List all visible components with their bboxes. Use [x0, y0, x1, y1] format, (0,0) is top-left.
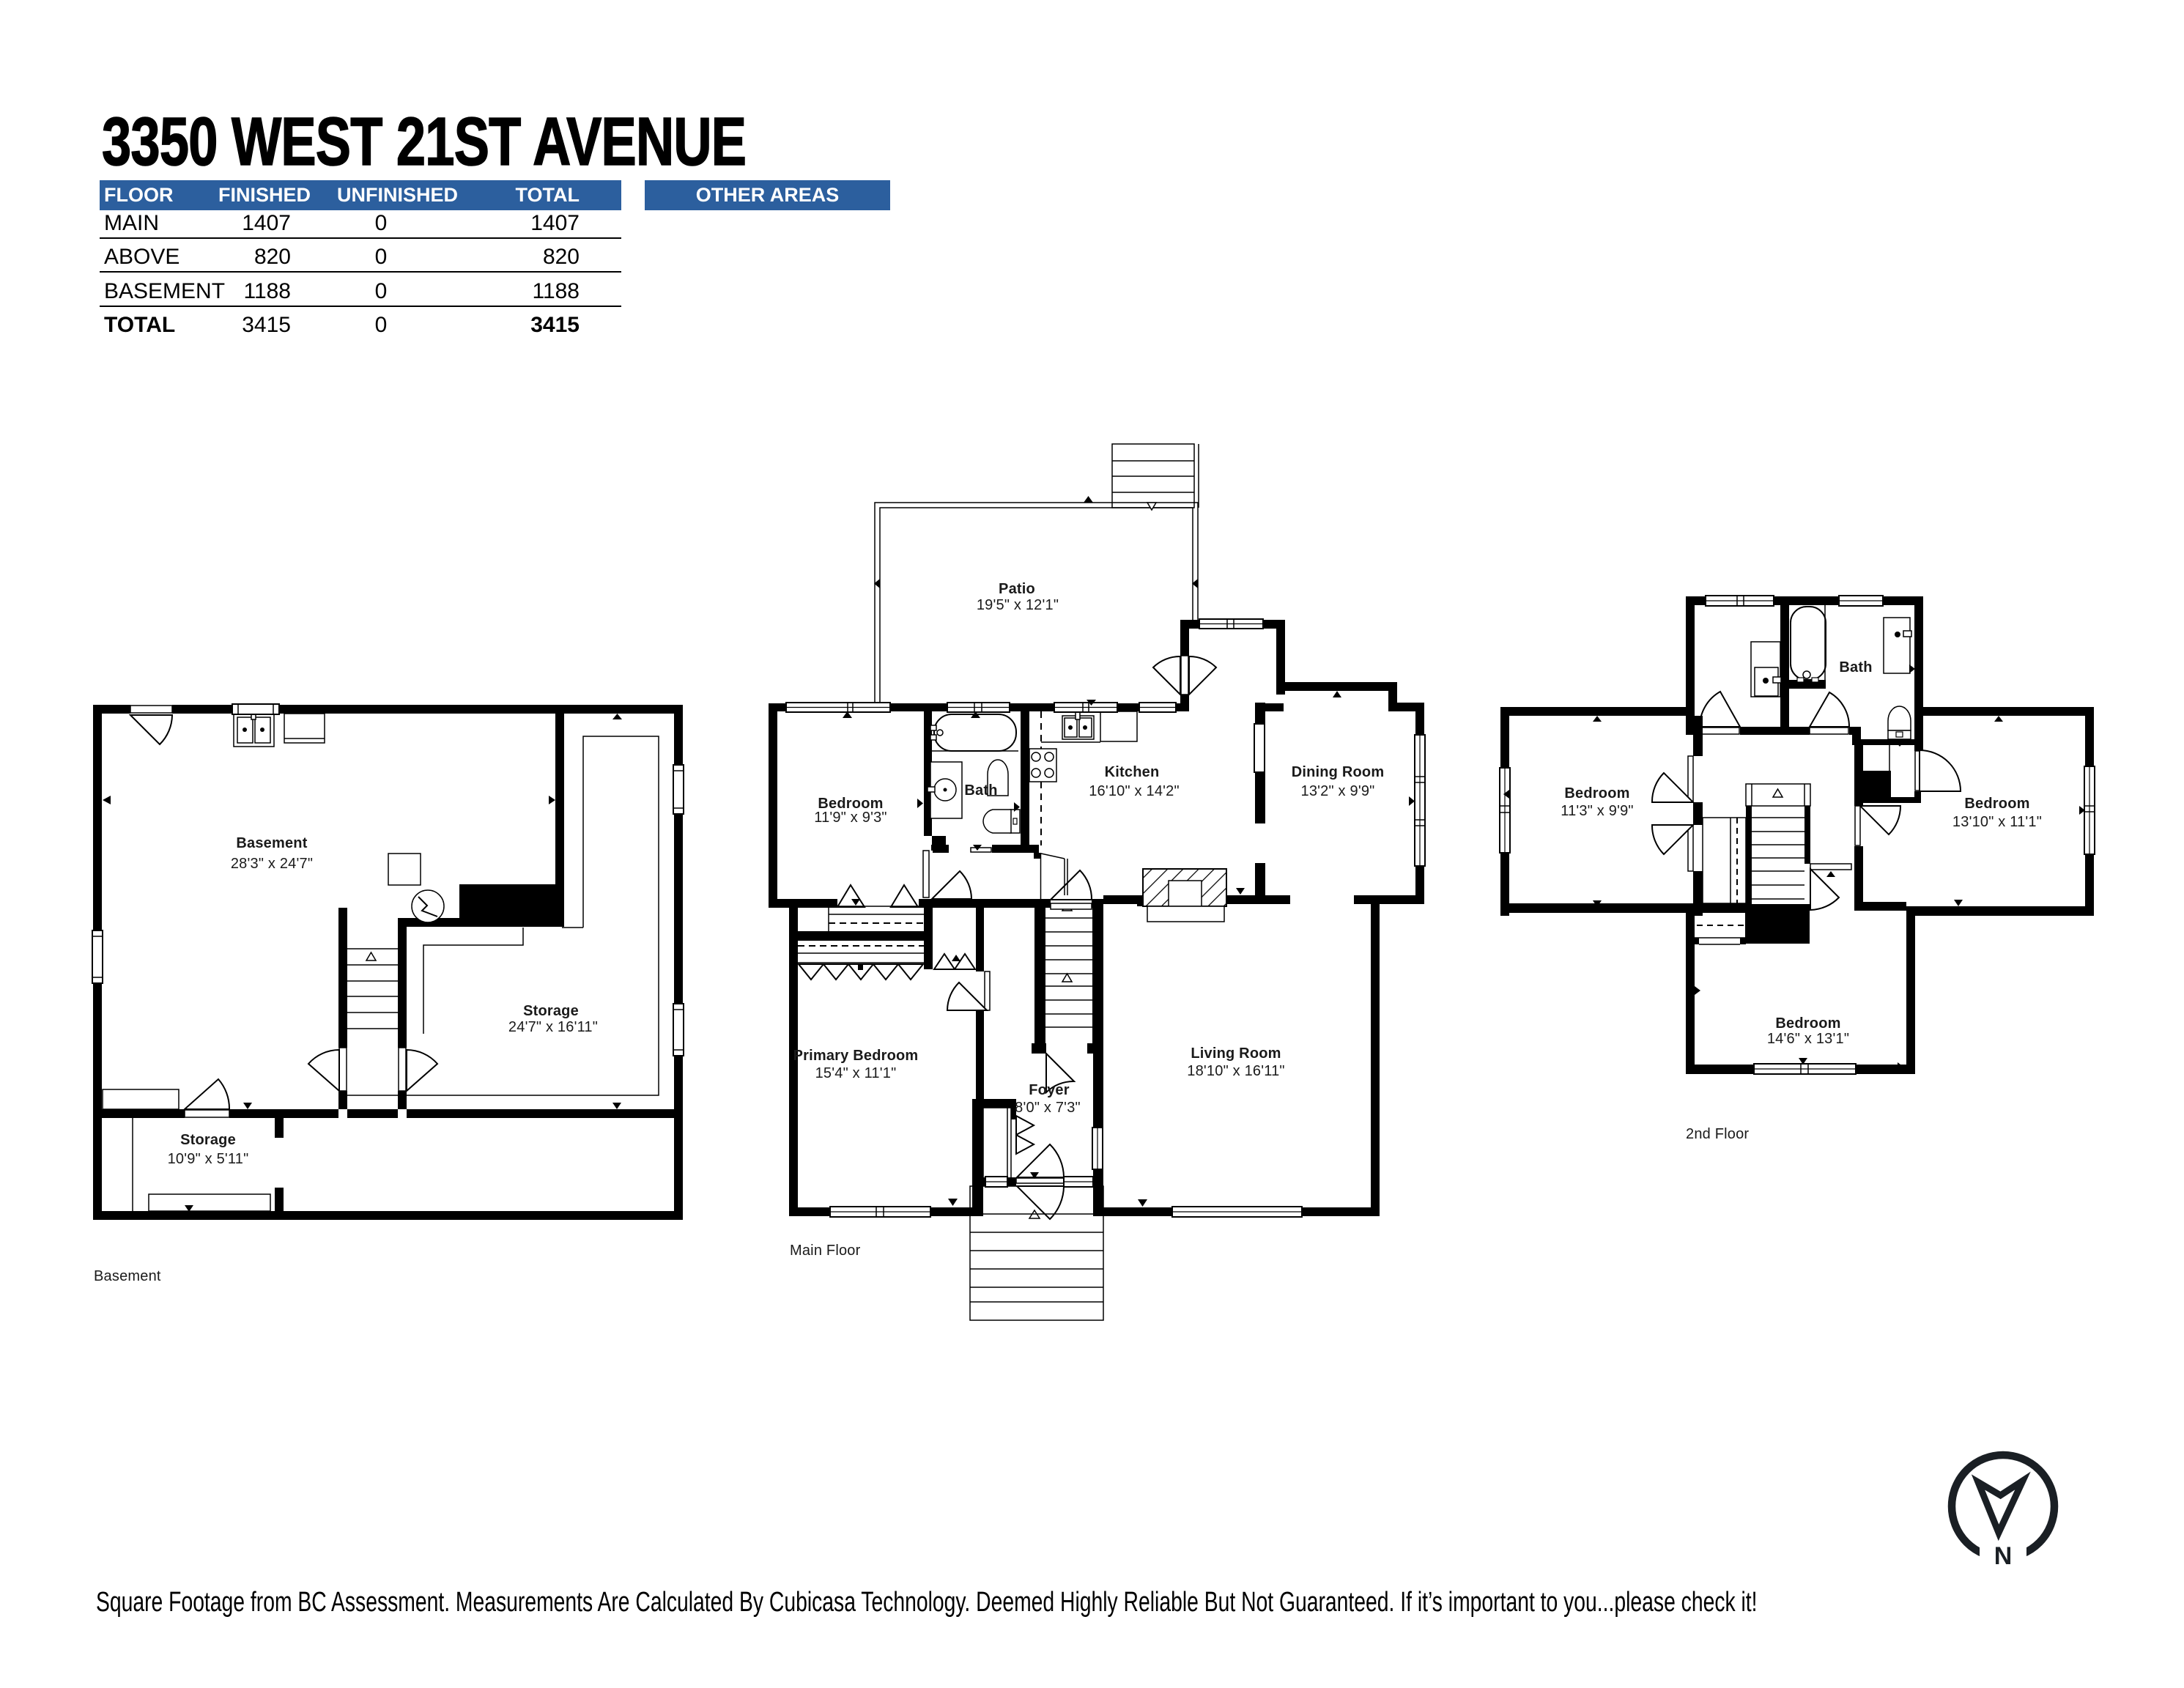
- svg-text:Bath: Bath: [964, 782, 997, 799]
- svg-text:Bath: Bath: [1839, 659, 1872, 675]
- svg-text:14'6" x 13'1": 14'6" x 13'1": [1767, 1031, 1849, 1047]
- svg-text:13'10" x 11'1": 13'10" x 11'1": [1952, 814, 2042, 830]
- svg-text:N: N: [1994, 1542, 2013, 1570]
- svg-text:Bedroom: Bedroom: [1564, 785, 1629, 802]
- svg-text:15'4" x 11'1": 15'4" x 11'1": [815, 1065, 897, 1081]
- svg-text:28'3" x 24'7": 28'3" x 24'7": [231, 856, 313, 872]
- svg-text:16'10" x 14'2": 16'10" x 14'2": [1089, 783, 1180, 799]
- svg-text:Bedroom: Bedroom: [1775, 1015, 1840, 1032]
- svg-text:Bedroom: Bedroom: [1964, 796, 2029, 812]
- svg-text:Kitchen: Kitchen: [1105, 764, 1160, 780]
- svg-text:Basement: Basement: [236, 835, 307, 851]
- svg-text:11'3" x 9'9": 11'3" x 9'9": [1561, 803, 1633, 819]
- svg-text:13'2" x 9'9": 13'2" x 9'9": [1301, 783, 1375, 799]
- svg-text:Main Floor: Main Floor: [790, 1243, 861, 1259]
- svg-text:11'9" x 9'3": 11'9" x 9'3": [814, 810, 886, 826]
- svg-text:Storage: Storage: [523, 1003, 579, 1019]
- svg-text:18'10" x 16'11": 18'10" x 16'11": [1187, 1063, 1284, 1079]
- svg-text:19'5" x 12'1": 19'5" x 12'1": [977, 597, 1059, 613]
- svg-text:2nd Floor: 2nd Floor: [1686, 1126, 1749, 1142]
- svg-text:Dining Room: Dining Room: [1292, 764, 1385, 780]
- svg-text:10'9" x 5'11": 10'9" x 5'11": [168, 1151, 249, 1167]
- svg-text:8'0" x 7'3": 8'0" x 7'3": [1015, 1100, 1081, 1116]
- svg-text:Primary Bedroom: Primary Bedroom: [793, 1048, 919, 1064]
- svg-text:Foyer: Foyer: [1029, 1082, 1069, 1098]
- svg-text:Basement: Basement: [94, 1268, 161, 1284]
- svg-text:Living Room: Living Room: [1191, 1045, 1281, 1062]
- svg-text:24'7" x 16'11": 24'7" x 16'11": [508, 1019, 598, 1035]
- svg-text:Patio: Patio: [999, 581, 1035, 597]
- svg-text:Storage: Storage: [180, 1132, 236, 1148]
